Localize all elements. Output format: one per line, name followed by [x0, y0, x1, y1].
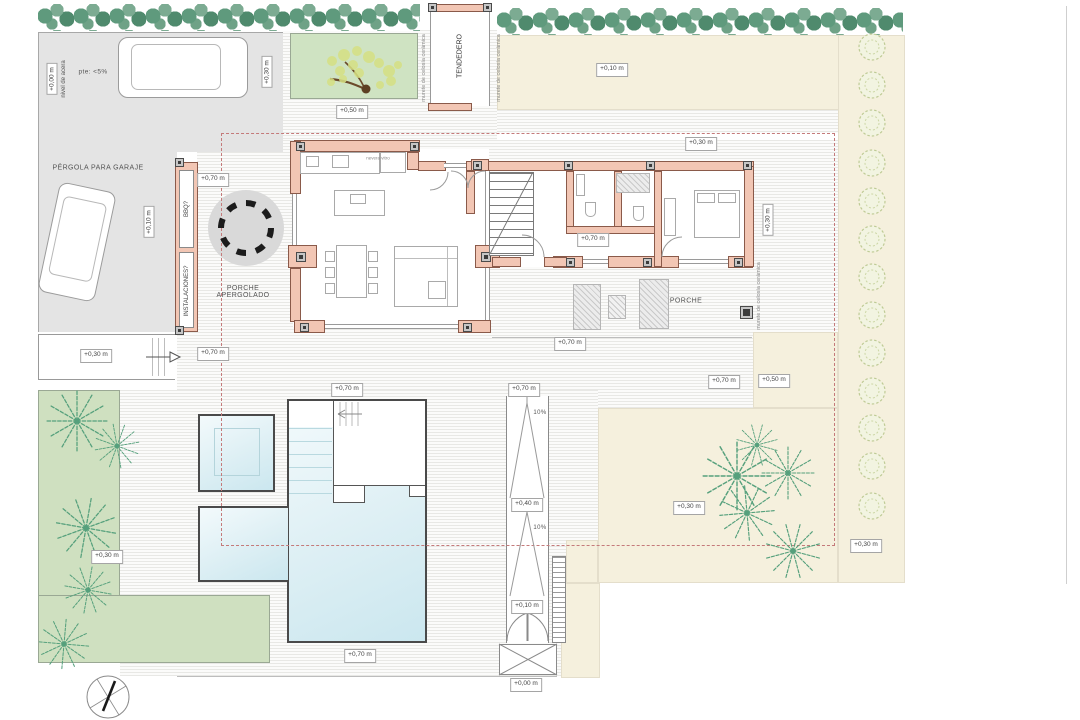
elevation-label: +0,30 m: [850, 539, 882, 553]
wall-sw-corner: [294, 320, 325, 333]
dining-chair: [325, 283, 335, 294]
annotation-murete: murete de celosía cerámica: [756, 262, 762, 330]
annotation-murete: murete de celosía cerámica: [421, 34, 427, 102]
jacuzzi-inner-line: [214, 428, 260, 476]
pool-platform: [333, 401, 425, 486]
dining-table: [336, 245, 367, 298]
pillar: [410, 142, 419, 151]
sliding-door-south: [325, 324, 458, 329]
dining-chair: [368, 251, 378, 262]
elevation-label: +0,00 m: [47, 63, 58, 95]
shower: [616, 173, 650, 193]
pool-top-deck: [289, 401, 333, 427]
area-label-instalaciones: INSTALACIONES?: [184, 266, 190, 317]
area-label-porche: PORCHE: [670, 298, 702, 305]
pool-platform-notch: [409, 486, 425, 497]
ramp-stair: [552, 556, 566, 643]
gate-entry-box: [499, 644, 557, 675]
pillar: [300, 323, 309, 332]
dining-chair: [368, 283, 378, 294]
elevation-label: +0,00 m: [510, 678, 542, 692]
wall-top-hall-a: [418, 161, 446, 171]
area-label-bbq: BBQ?: [184, 201, 190, 217]
garden-patch: [290, 33, 418, 99]
car-roof: [48, 195, 108, 282]
elevation-label: +0,50 m: [758, 374, 790, 388]
wall-west-lower: [290, 268, 301, 322]
porche-apergolado-line2: APERGOLADO: [216, 292, 269, 299]
elevation-label: +0,70 m: [554, 337, 586, 351]
lawn-porch-corner: [753, 332, 838, 408]
wall-top-living: [294, 140, 420, 152]
elevation-label: +0,30 m: [91, 550, 123, 564]
pillar: [483, 3, 492, 12]
pillar: [566, 258, 575, 267]
elevation-label: +0,10 m: [144, 206, 155, 238]
lawn-gate-side-a: [566, 540, 598, 583]
pillar: [564, 161, 573, 170]
deck-south-edge-line: [177, 676, 557, 677]
pillar: [743, 161, 752, 170]
island-sink: [350, 194, 366, 204]
wall-interior-hall: [466, 171, 475, 214]
annotation-slope: 10%: [533, 410, 546, 416]
annotation-murete: murete de celosía cerámica: [496, 34, 502, 102]
elevation-label: +0,70 m: [197, 347, 229, 361]
bath-vanity: [576, 174, 585, 196]
window-east-lower: [485, 268, 490, 320]
pillar: [646, 161, 655, 170]
walkway-step: [164, 338, 165, 376]
porch-south-edge-line: [492, 337, 752, 338]
pillar: [296, 142, 305, 151]
pergola-table: [208, 190, 284, 266]
window-south-bed-a: [583, 259, 608, 264]
pool-platform-step: [333, 486, 365, 503]
pillar: [175, 158, 184, 167]
elevation-label: +0,70 m: [577, 233, 609, 247]
elevation-label: +0,70 m: [331, 383, 363, 397]
pillar: [428, 3, 437, 12]
walkway-step: [158, 338, 159, 376]
toilet: [585, 202, 596, 217]
wall-hall-south-a: [492, 257, 521, 267]
pool-west-lobe: [198, 506, 288, 582]
elevation-label: +0,10 m: [511, 600, 543, 614]
elevation-label: +0,30 m: [763, 204, 774, 236]
site-plan: +0,00 m nivel de acera pte: <5% +0,30 m …: [0, 0, 1080, 720]
elevation-label: +0,10 m: [596, 63, 628, 77]
window-south-bed-b: [679, 259, 728, 264]
walkway-step: [152, 338, 153, 376]
area-label-porche-apergolado: PORCHE APERGOLADO: [216, 285, 269, 299]
pillar: [175, 326, 184, 335]
tendedero-wall-bottom: [428, 103, 472, 111]
wardrobe: [664, 198, 676, 236]
elevation-label: +0,30 m: [685, 137, 717, 151]
wall-bedroom-west: [654, 171, 662, 267]
garden-south-strip: [38, 595, 270, 663]
wall-top-bedroom: [566, 161, 754, 171]
elevation-label: +0,30 m: [673, 501, 705, 515]
lawn-gate-side-b: [561, 583, 600, 678]
pillar: [734, 258, 743, 267]
pillar-porch-se: [740, 306, 753, 319]
wall-east: [744, 166, 754, 267]
area-label-pergola-garaje: PÉRGOLA PARA GARAJE: [52, 165, 143, 172]
pool-steps: [289, 428, 332, 506]
compass-icon: [87, 676, 129, 718]
sofa: [394, 246, 458, 307]
lawn-east-strip: [838, 35, 905, 583]
annotation-slope: 10%: [533, 525, 546, 531]
staircase: [489, 172, 534, 256]
annotation-kitchen: nevera vitro: [366, 156, 390, 161]
lawn-southeast: [598, 408, 838, 583]
pillar: [473, 161, 482, 170]
elevation-label: +0,30 m: [80, 349, 112, 363]
car-roof: [131, 44, 221, 90]
elevation-label: +0,30 m: [262, 56, 273, 88]
kitchen-sink: [306, 156, 319, 167]
bed-pillow: [718, 193, 736, 203]
elevation-label: +0,70 m: [708, 375, 740, 389]
deck-north-band: [497, 110, 838, 133]
sofa-table: [428, 281, 446, 299]
elevation-label: +0,70 m: [344, 649, 376, 663]
bed-pillow: [697, 193, 715, 203]
window-north-hall: [444, 163, 466, 168]
pillar: [643, 258, 652, 267]
lounge-table: [608, 295, 626, 319]
sofa-line: [395, 258, 457, 259]
hedge-row-east: [497, 8, 903, 35]
kitchen-stove: [332, 155, 349, 168]
dining-chair: [325, 251, 335, 262]
porche-apergolado-line1: PORCHE: [227, 285, 259, 292]
elevation-label: +0,40 m: [511, 498, 543, 512]
dining-chair: [368, 267, 378, 278]
wall-hall-south-b: [544, 257, 567, 267]
lounge-chair: [639, 279, 669, 329]
annotation-nivel-acera: nivel de acera: [61, 60, 67, 97]
elevation-label: +0,70 m: [197, 173, 229, 187]
dining-chair: [325, 267, 335, 278]
sofa-line: [447, 247, 448, 306]
elevation-label: +0,50 m: [336, 105, 368, 119]
sheet-border: [1066, 6, 1067, 584]
pillar: [463, 323, 472, 332]
annotation-slope-garage: pte: <5%: [78, 69, 107, 76]
lounge-chair: [573, 284, 601, 330]
area-label-tendedero: TENDEDERO: [457, 34, 464, 78]
elevation-label: +0,70 m: [508, 383, 540, 397]
pillar: [296, 252, 306, 262]
window-west: [292, 194, 297, 245]
car-parked-top: [118, 37, 248, 98]
wall-bath1: [566, 171, 574, 227]
hedge-row-west: [38, 4, 420, 31]
toilet: [633, 206, 644, 221]
